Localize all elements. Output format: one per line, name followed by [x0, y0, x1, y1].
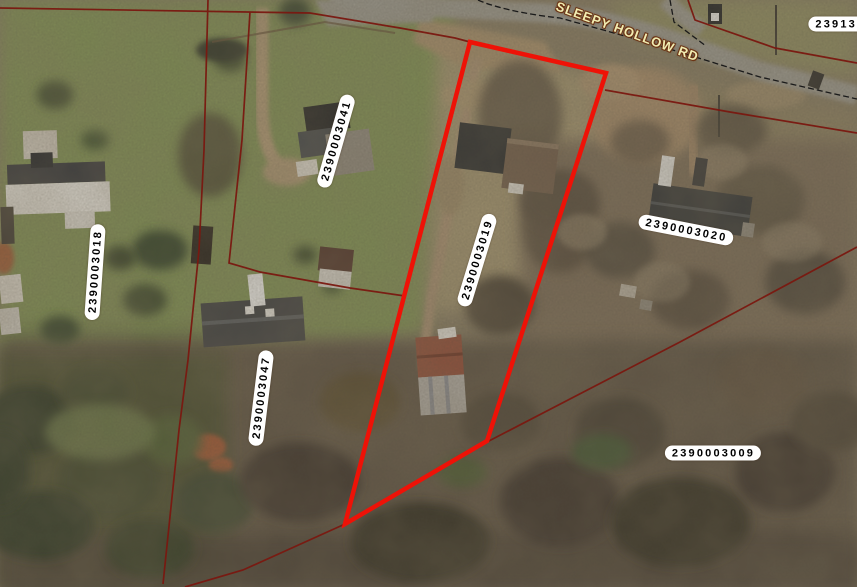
gis-map-canvas[interactable]: SLEEPY HOLLOW RD 2390003041 2390003018 2…	[0, 0, 857, 587]
parcel-label-2391301-clipped: 2391301	[808, 17, 857, 32]
parcel-label-2390003009: 2390003009	[665, 446, 761, 461]
aerial-imagery	[0, 0, 857, 587]
grain-overlay	[0, 0, 857, 587]
